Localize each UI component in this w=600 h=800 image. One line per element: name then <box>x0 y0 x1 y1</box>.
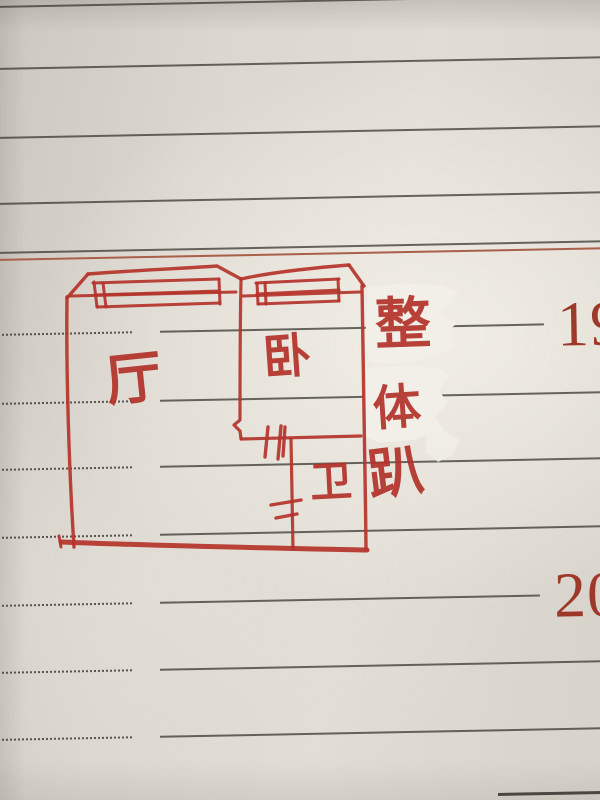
divider-wall <box>234 280 241 439</box>
door-mark-bedroom <box>265 426 285 459</box>
room-label-bedroom: 卧 <box>261 331 312 382</box>
room-label-hall: 厅 <box>103 349 165 411</box>
window-left <box>93 279 220 307</box>
room-label-bathroom: 卫 <box>309 460 353 504</box>
annotation-char: 整 <box>374 296 432 354</box>
window-right <box>256 279 339 304</box>
notebook-page-photo: { "paper": { "base_color": "#d9d5cd", "r… <box>0 0 600 800</box>
door-mark-bathroom <box>271 500 301 518</box>
annotation-char: 趴 <box>365 443 427 505</box>
day-number-20: 20 <box>553 562 600 627</box>
bottom-wall <box>59 536 367 550</box>
bedroom-bottom-wall <box>242 436 361 439</box>
bathroom-wall <box>291 439 293 549</box>
annotation-char: 体 <box>371 382 422 433</box>
day-number-19: 19 <box>556 291 600 356</box>
floor-plan-sketch <box>0 0 600 800</box>
